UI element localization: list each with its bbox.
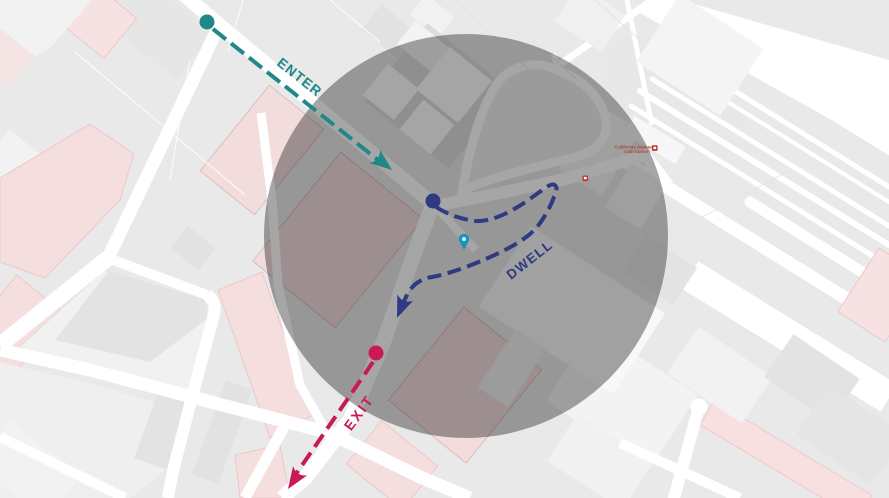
svg-text:train station: train station xyxy=(624,149,650,154)
